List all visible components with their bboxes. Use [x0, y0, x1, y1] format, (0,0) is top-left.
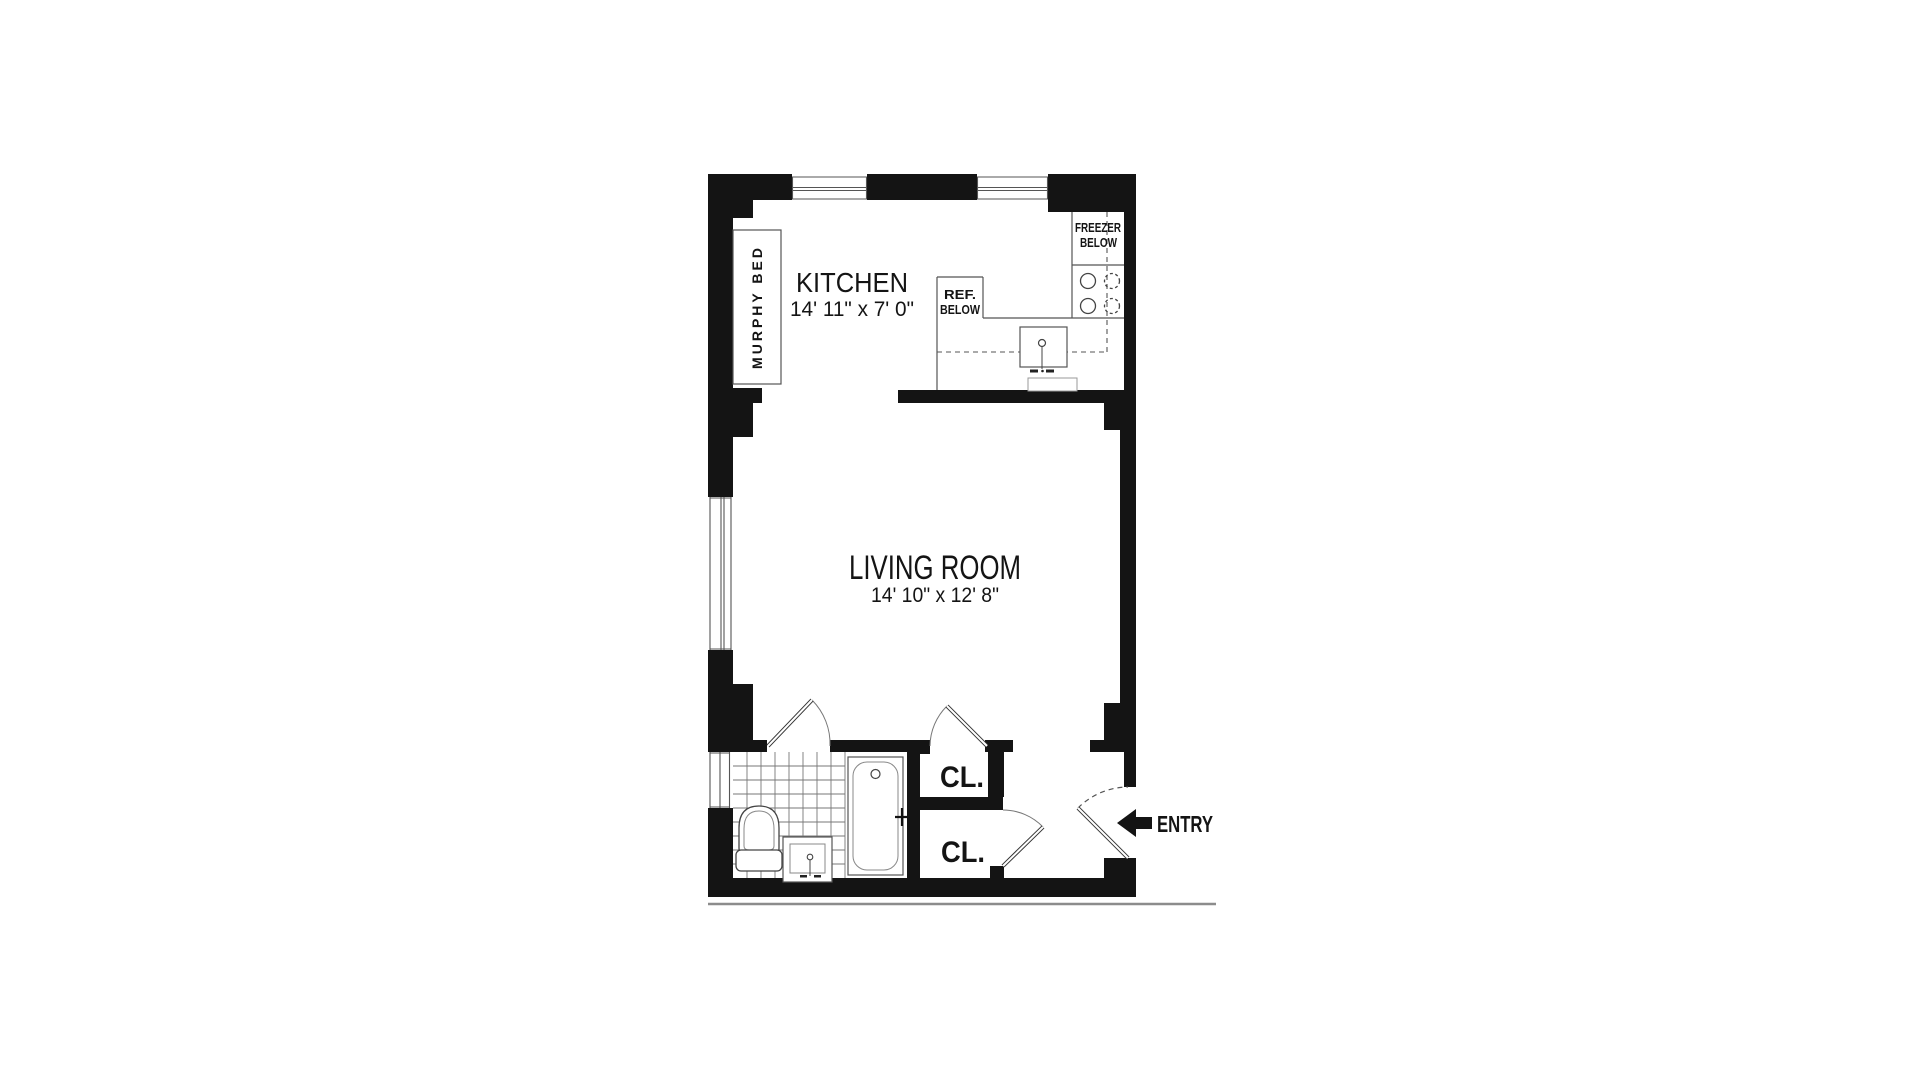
freezer-below-label-line2: BELOW	[1080, 235, 1118, 250]
kitchen-sink-handle-left	[1030, 370, 1038, 373]
bathroom-window	[708, 752, 733, 808]
kitchen-sink-spout-dot	[1041, 370, 1044, 373]
ref-below-label-line2: BELOW	[940, 302, 981, 317]
bathroom-door-swing-arc	[812, 700, 830, 746]
burner-top-left	[1081, 274, 1096, 289]
living-room-label: LIVING ROOM	[849, 549, 1021, 587]
bath-wall-top	[830, 740, 920, 752]
top-window-left	[792, 174, 867, 200]
closet-divider-wall	[920, 797, 1003, 810]
left-wall-upper	[708, 218, 733, 388]
closet-lower-label: CL.	[941, 836, 985, 869]
closet-upper-door-leaf-inner	[947, 706, 987, 746]
bathtub-outline	[848, 757, 903, 875]
left-wall-bath-upper	[708, 740, 733, 752]
right-wall-below-entry	[1104, 858, 1136, 897]
bathroom-door	[768, 700, 830, 746]
bathroom-sink-handle-left	[800, 875, 807, 878]
toilet-bowl	[739, 806, 779, 854]
closet-lower-door	[1003, 810, 1043, 866]
ref-below-label-line1: REF.	[944, 287, 976, 302]
entry-arrow-icon	[1117, 809, 1152, 837]
bathroom-sink-handle-right	[814, 875, 821, 878]
kitchen-sink-basin	[1020, 327, 1067, 367]
kitchen-dimensions: 14' 11" x 7' 0"	[790, 298, 914, 321]
closet-upper-label: CL.	[940, 761, 984, 794]
closet-lower-door-leaf-inner	[1003, 827, 1043, 866]
bath-wall-left-stub	[733, 740, 767, 752]
toilet-tank	[736, 850, 782, 871]
entry-label: ENTRY	[1157, 811, 1213, 837]
left-wall-block	[708, 684, 753, 740]
right-wall-kitchen	[1124, 212, 1136, 390]
floor-plan-page: KITCHEN 14' 11" x 7' 0" LIVING ROOM 14' …	[0, 0, 1920, 1080]
kitchen-sink-handle-right	[1046, 370, 1054, 373]
left-wall-lower	[708, 650, 733, 684]
right-wall-above-entry	[1124, 752, 1136, 787]
kitchen-divider-wall	[898, 390, 1136, 403]
top-window-right	[977, 174, 1048, 200]
left-wall-mid	[708, 437, 733, 497]
labels: KITCHEN 14' 11" x 7' 0" LIVING ROOM 14' …	[749, 220, 1121, 869]
bathtub	[848, 757, 908, 875]
closet-wall-right-lower-stub	[990, 866, 1004, 878]
right-wall-block-upper	[1104, 390, 1136, 430]
right-wall-living	[1120, 430, 1136, 703]
entry-door-swing-arc	[1078, 787, 1128, 808]
closet-upper-door-swing-arc	[930, 706, 947, 746]
top-right-corner-block	[1048, 174, 1136, 212]
hall-stub-left	[985, 740, 1013, 752]
left-wall-step	[708, 403, 753, 437]
closet-wall-right-upper	[988, 752, 1004, 797]
bottom-wall	[708, 878, 1136, 897]
burner-bottom-left	[1081, 299, 1096, 314]
bathroom-door-leaf-inner	[768, 700, 812, 746]
left-wall-protrusion	[708, 388, 762, 403]
entry-door-leaf-inner	[1078, 808, 1128, 858]
hall-stub-right	[1090, 740, 1136, 752]
burner-top-right	[1105, 274, 1120, 289]
living-room-window	[708, 497, 733, 650]
bath-wall-right	[907, 740, 920, 878]
entry-marker: ENTRY	[1117, 809, 1213, 837]
closet-lower-door-swing-arc	[1003, 810, 1043, 827]
left-wall-bath-lower	[708, 808, 733, 878]
floor-plan-drawing: KITCHEN 14' 11" x 7' 0" LIVING ROOM 14' …	[0, 0, 1920, 1080]
freezer-below-label-line1: FREEZER	[1075, 220, 1121, 235]
stove-burners	[1081, 274, 1120, 314]
bathroom-fixtures	[733, 752, 908, 882]
living-room-dimensions: 14' 10" x 12' 8"	[871, 584, 999, 607]
murphy-bed-label: MURPHY BED	[749, 245, 765, 369]
kitchen-sink	[1020, 327, 1067, 373]
closet-wall-left-jamb	[920, 740, 930, 754]
kitchen-label: KITCHEN	[796, 267, 908, 298]
toilet	[736, 806, 782, 871]
cabinet-notch-below-sink	[1028, 378, 1077, 391]
closet-upper-door	[930, 706, 987, 746]
top-wall-middle	[867, 174, 977, 200]
bathroom-sink	[783, 837, 832, 882]
top-left-corner-block	[708, 174, 753, 218]
